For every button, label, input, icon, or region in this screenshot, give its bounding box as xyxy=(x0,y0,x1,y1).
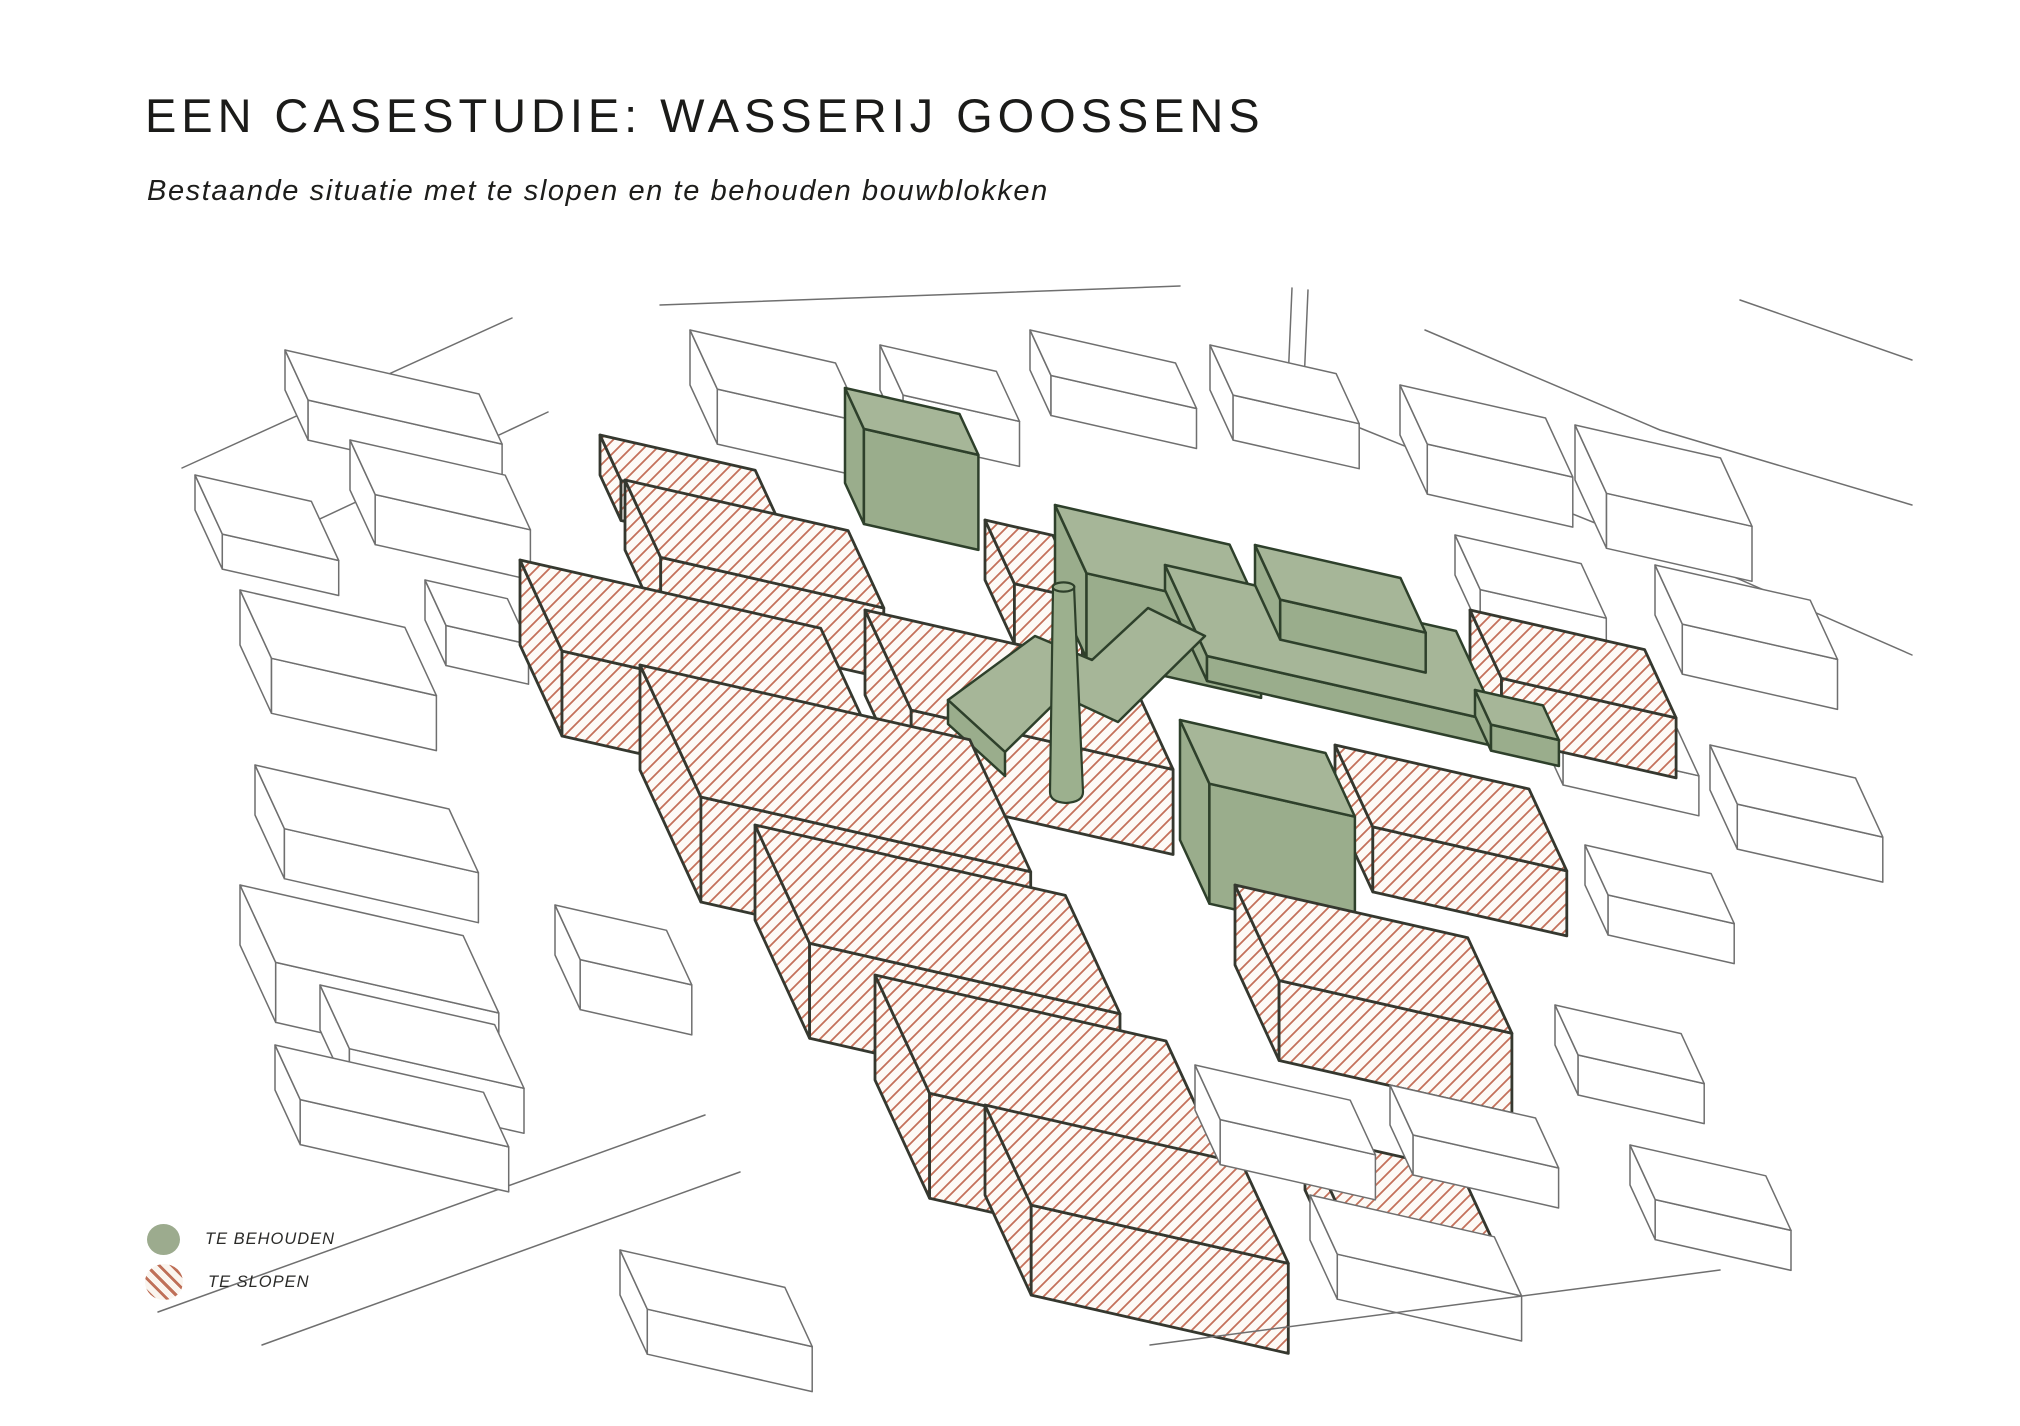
slide-page: EEN CASESTUDIE: WASSERIJ GOOSSENS Bestaa… xyxy=(0,0,2020,1426)
legend-label-keep: TE BEHOUDEN xyxy=(205,1230,335,1249)
page-subtitle: Bestaande situatie met te slopen en te b… xyxy=(147,175,1265,208)
legend-item-demolish: TE SLOPEN xyxy=(147,1265,335,1299)
keep-circle-swatch xyxy=(147,1224,180,1255)
page-title: EEN CASESTUDIE: WASSERIJ GOOSSENS xyxy=(145,88,1265,143)
scene-shapes xyxy=(158,286,1912,1392)
axonometric-city-drawing xyxy=(0,0,2020,1426)
header: EEN CASESTUDIE: WASSERIJ GOOSSENS Bestaa… xyxy=(145,88,1265,208)
legend-item-keep: TE BEHOUDEN xyxy=(147,1222,335,1256)
legend-label-demolish: TE SLOPEN xyxy=(208,1273,310,1292)
legend: TE BEHOUDEN TE SLOPEN xyxy=(147,1222,335,1308)
demolish-hatch-swatch xyxy=(145,1264,183,1300)
